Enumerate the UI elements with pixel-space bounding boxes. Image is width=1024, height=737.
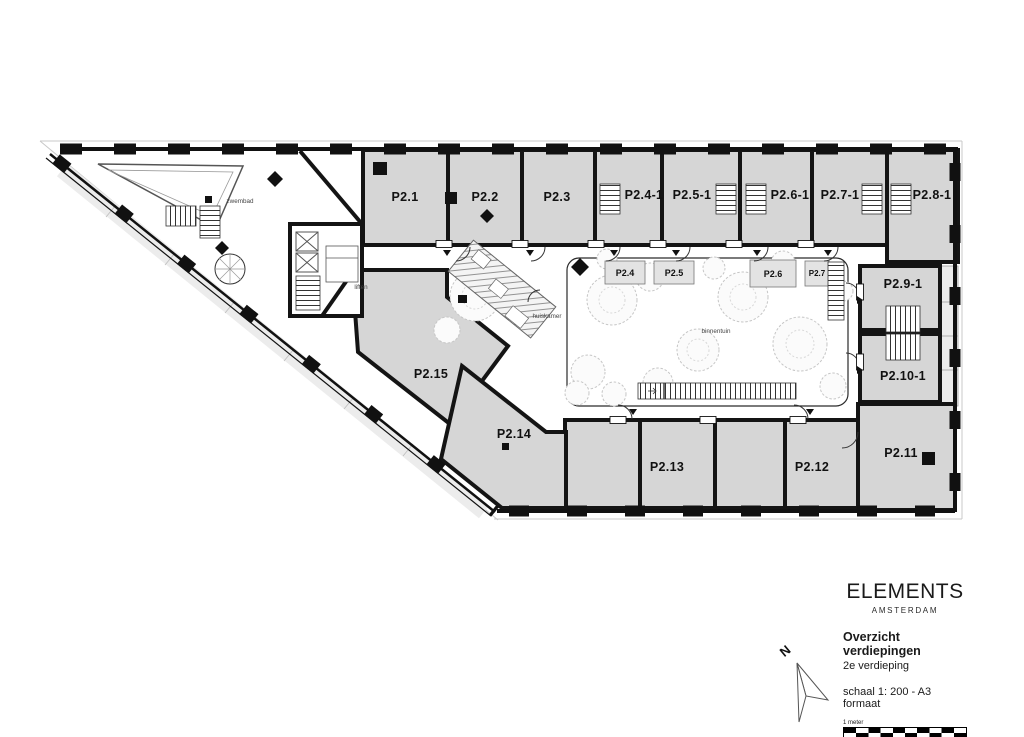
lifts-label: liften: [354, 284, 368, 291]
room-shape-b: [715, 420, 785, 508]
stairs-icon: [886, 334, 920, 360]
stairs-icon: [600, 184, 620, 214]
stairs-icon: [746, 184, 766, 214]
shaft-marker: [502, 443, 509, 450]
shaft-marker: [458, 295, 467, 303]
drawing-subtitle: 2e verdieping: [843, 660, 967, 672]
patio-label-p2-5: P2.5: [665, 268, 684, 278]
room-label-p2-15: P2.15: [414, 367, 448, 381]
stairs-icon: [166, 206, 196, 226]
stairs-icon: [296, 276, 320, 310]
spiral-stair-icon: [215, 254, 245, 284]
room-label-p2-8-1: P2.8-1: [913, 188, 952, 202]
courtyard-label: binnentuin: [701, 328, 731, 335]
stairs-icon: [200, 206, 220, 238]
stairs-icon: [716, 184, 736, 214]
title-block: ELEMENTS AMSTERDAM Overzicht verdiepinge…: [843, 580, 967, 737]
room-label-p2-4-1: P2.4-1: [625, 188, 664, 202]
patio-label-p2-7: P2.7: [809, 269, 826, 278]
room-label-p2-10-1: P2.10-1: [880, 369, 926, 383]
room-label-p2-11: P2.11: [884, 446, 917, 460]
floor-plan-page: P2.4 P2.5 P2.6 P2.7: [0, 0, 1024, 737]
stairs-icon: [862, 184, 882, 214]
pool-label: zwembad: [227, 198, 254, 205]
scale-bar: [843, 727, 967, 737]
garden-stairs-icon: [638, 383, 796, 399]
shaft-marker: [205, 196, 212, 203]
scale-bar-row: [844, 733, 966, 737]
room-label-p2-12: P2.12: [795, 460, 829, 474]
patio-label-p2-6: P2.6: [764, 269, 783, 279]
core-room: [326, 246, 358, 282]
scale-note: schaal 1: 200 - A3 formaat: [843, 686, 967, 710]
north-label: N: [777, 642, 794, 660]
north-arrow-icon: N: [777, 642, 828, 722]
stairs-icon: [886, 306, 920, 332]
room-label-p2-3: P2.3: [544, 190, 571, 204]
room-label-p2-5-1: P2.5-1: [673, 188, 712, 202]
core-lifts-stairs: [290, 151, 362, 316]
diamond-marker: [215, 241, 229, 255]
drawing-title: Overzicht verdiepingen: [843, 630, 967, 658]
scale-bar-unit-label: 1 meter: [843, 720, 967, 726]
living-room-label: huiskamer: [532, 313, 561, 320]
shaft-marker: [445, 192, 457, 204]
stairs-icon: [828, 262, 844, 320]
room-label-p2-14: P2.14: [497, 427, 531, 441]
room-label-p2-9-1: P2.9-1: [884, 277, 923, 291]
brand-logo: ELEMENTS: [843, 580, 967, 604]
room-label-p2-7-1: P2.7-1: [821, 188, 860, 202]
diamond-marker: [267, 171, 283, 187]
patio-label-p2-4: P2.4: [616, 268, 635, 278]
shaft-marker: [373, 162, 387, 175]
room-label-p2-2: P2.2: [472, 190, 499, 204]
stairs-icon: [891, 184, 911, 214]
room-label-p2-1: P2.1: [392, 190, 419, 204]
room-label-p2-6-1: P2.6-1: [771, 188, 810, 202]
brand-sublogo: AMSTERDAM: [843, 606, 967, 615]
room-shape-a: [565, 420, 640, 508]
shaft-marker: [922, 452, 935, 465]
room-label-p2-13: P2.13: [650, 460, 684, 474]
